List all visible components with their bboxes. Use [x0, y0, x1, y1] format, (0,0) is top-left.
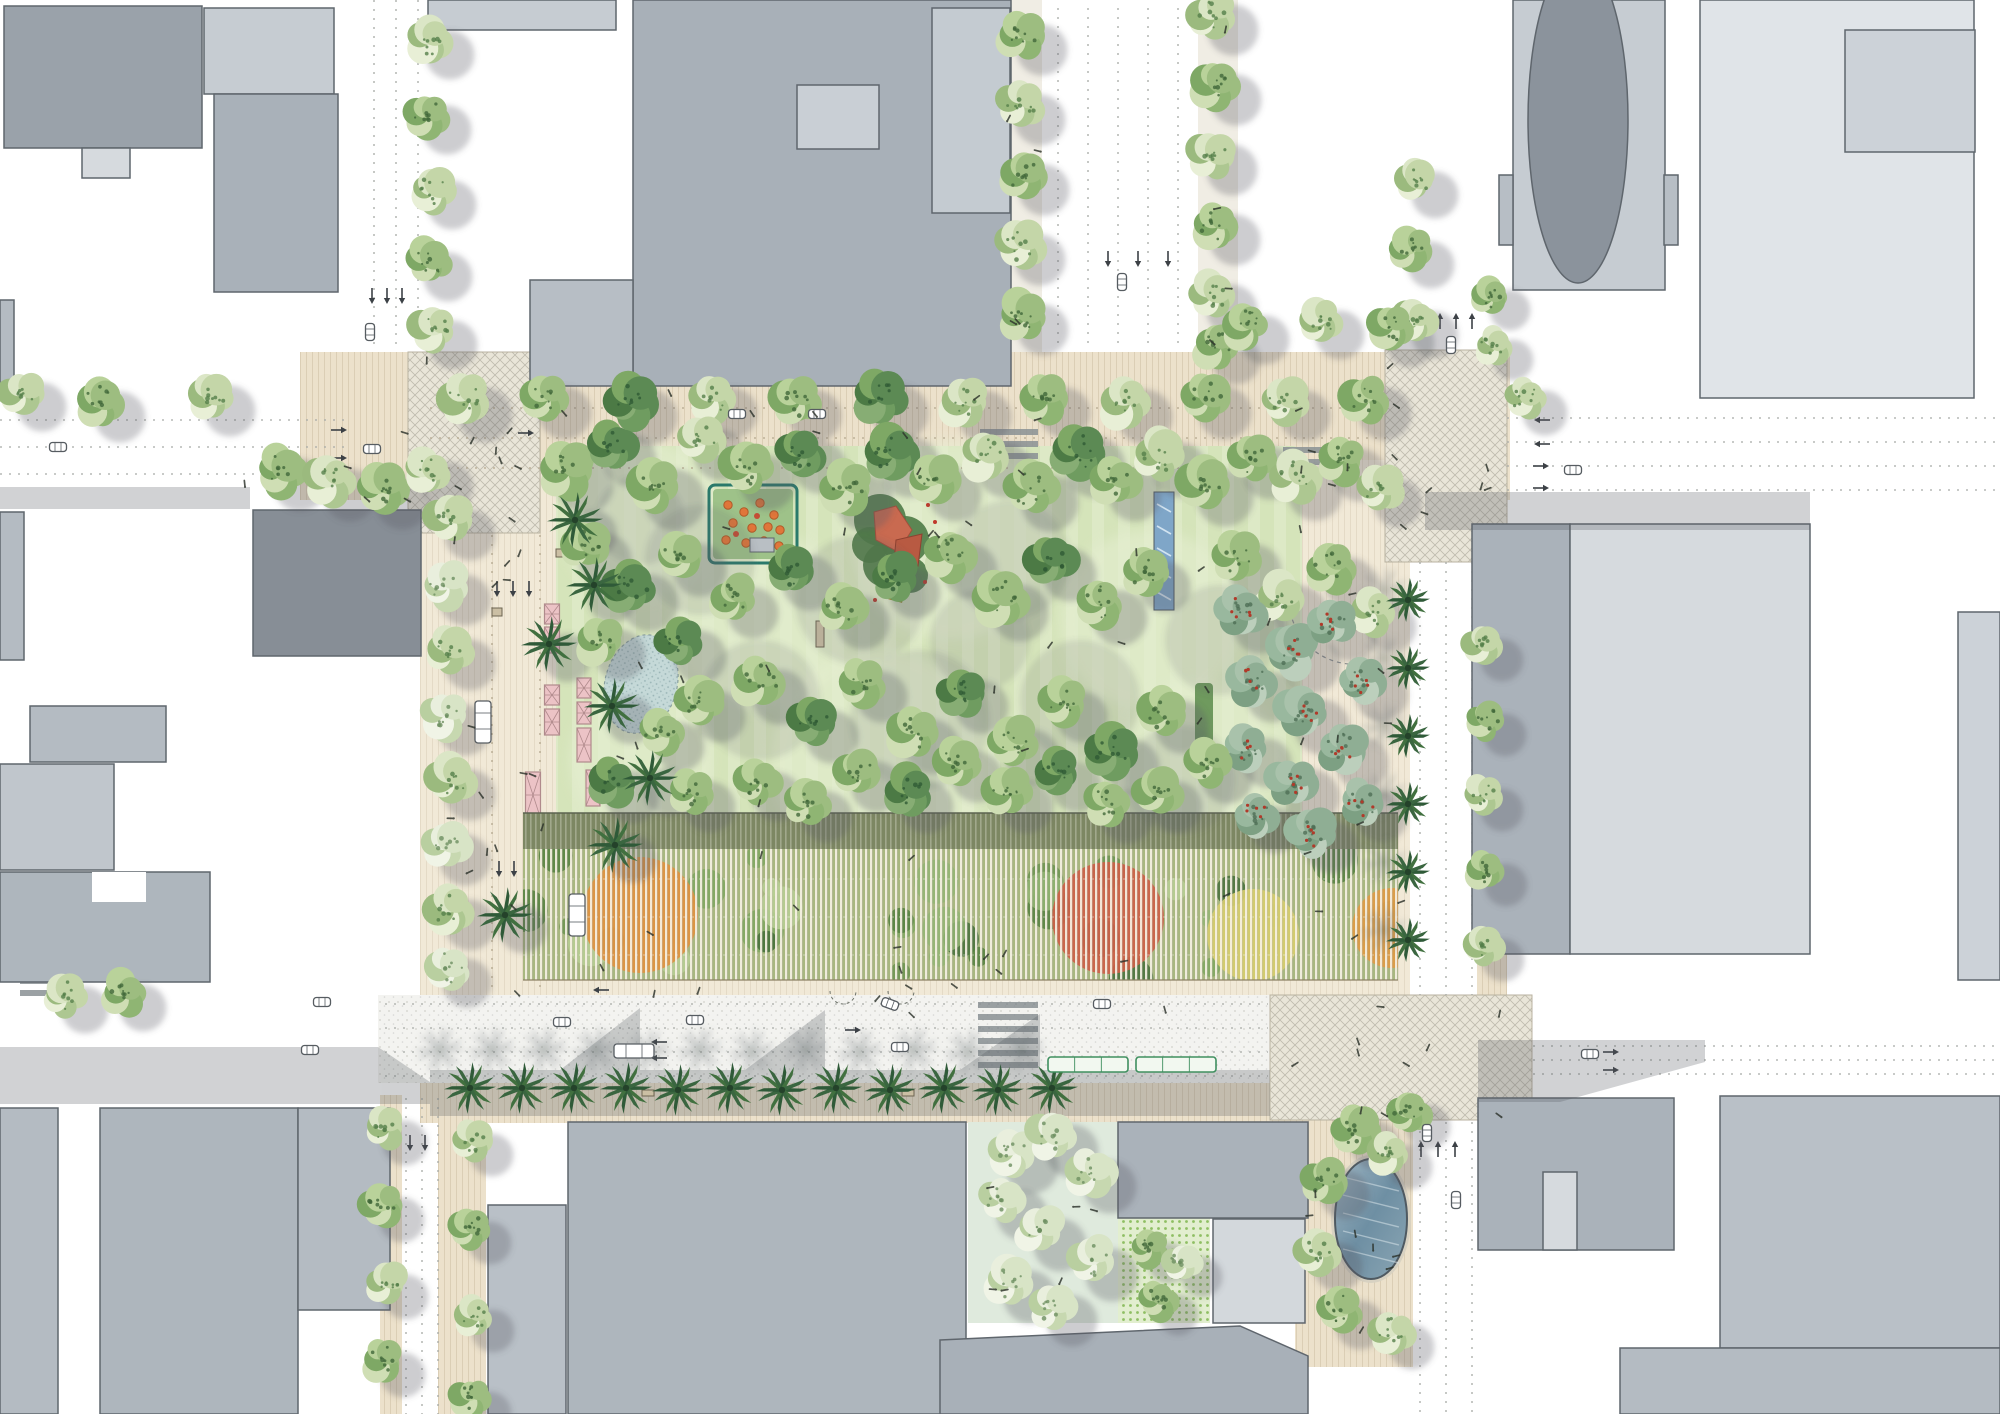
- tree: [1299, 297, 1343, 342]
- building-shadow: [1425, 492, 1810, 530]
- car: [687, 1016, 704, 1025]
- tree: [448, 1381, 492, 1414]
- market-stall: [577, 728, 591, 762]
- play-element: [754, 513, 760, 519]
- market-stall: [577, 678, 591, 698]
- market-stall: [577, 702, 591, 724]
- zebra-bar: [978, 1014, 1038, 1020]
- tree: [362, 1339, 401, 1383]
- building: [1620, 1348, 2000, 1414]
- car: [366, 324, 375, 341]
- building: [1570, 524, 1810, 954]
- play-element: [776, 526, 784, 534]
- van: [475, 701, 491, 743]
- building: [530, 280, 633, 386]
- car: [1447, 337, 1456, 354]
- car: [1118, 274, 1127, 291]
- building-shadow: [0, 1047, 430, 1104]
- play-element: [764, 523, 772, 531]
- tram: [1048, 1057, 1128, 1072]
- building: [0, 512, 24, 660]
- building: [1213, 1219, 1305, 1323]
- building: [1118, 1122, 1308, 1218]
- car: [1582, 1050, 1599, 1059]
- traffic-arrow: [369, 288, 375, 304]
- zebra-bar: [978, 1002, 1038, 1008]
- building: [1845, 30, 1975, 152]
- building: [100, 1108, 298, 1414]
- building: [82, 148, 130, 178]
- person: [243, 480, 246, 488]
- building: [1499, 175, 1513, 245]
- tree: [1185, 133, 1236, 179]
- building: [1958, 612, 2000, 980]
- tree: [658, 531, 702, 578]
- traffic-arrow: [1534, 441, 1550, 447]
- play-element: [740, 508, 748, 516]
- building: [0, 764, 114, 870]
- building: [940, 1326, 1308, 1414]
- traffic-arrow: [399, 288, 405, 304]
- site-plan-svg: [0, 0, 2000, 1414]
- tree: [540, 441, 594, 502]
- building: [1664, 175, 1678, 245]
- car: [314, 998, 331, 1007]
- building: [428, 0, 616, 30]
- building: [1720, 1096, 2000, 1348]
- building: [568, 1122, 966, 1414]
- car: [364, 445, 381, 454]
- traffic-arrow: [1135, 251, 1141, 267]
- car: [1565, 466, 1582, 475]
- building: [797, 85, 879, 149]
- car: [892, 1043, 909, 1052]
- flower-dot: [926, 503, 930, 507]
- traffic-arrow: [1533, 463, 1549, 469]
- building-notch: [92, 872, 146, 902]
- site-plan-map: [0, 0, 2000, 1414]
- traffic-arrow: [1165, 251, 1171, 267]
- play-element: [770, 511, 778, 519]
- car: [1452, 1192, 1461, 1209]
- car: [1423, 1125, 1432, 1142]
- car: [302, 1046, 319, 1055]
- traffic-arrow: [384, 288, 390, 304]
- building: [253, 510, 421, 656]
- building: [214, 94, 338, 292]
- bus: [614, 1044, 654, 1058]
- building-shadow: [430, 1070, 1270, 1116]
- market-stall: [545, 685, 560, 705]
- van: [569, 894, 585, 936]
- car: [1094, 1000, 1111, 1009]
- market-stall: [526, 772, 541, 818]
- bench: [642, 1090, 654, 1096]
- market-stall: [545, 709, 560, 735]
- tram: [1136, 1057, 1216, 1072]
- traffic-arrow: [1469, 313, 1475, 329]
- flower-dot: [933, 520, 937, 524]
- tree: [1337, 376, 1389, 425]
- building: [30, 706, 166, 762]
- traffic-arrow: [1105, 251, 1111, 267]
- building: [0, 300, 14, 388]
- car: [50, 443, 67, 452]
- building: [204, 8, 334, 94]
- tree: [1471, 275, 1507, 313]
- play-element: [724, 501, 732, 509]
- traffic-arrow: [1452, 1141, 1458, 1157]
- building: [0, 1108, 58, 1414]
- car: [554, 1018, 571, 1027]
- play-element: [748, 524, 756, 532]
- tree: [405, 235, 452, 281]
- car: [729, 410, 746, 419]
- building-shadow: [0, 487, 250, 509]
- tree: [1476, 325, 1513, 365]
- building: [4, 6, 202, 148]
- bench: [492, 608, 502, 616]
- building: [1543, 1172, 1577, 1250]
